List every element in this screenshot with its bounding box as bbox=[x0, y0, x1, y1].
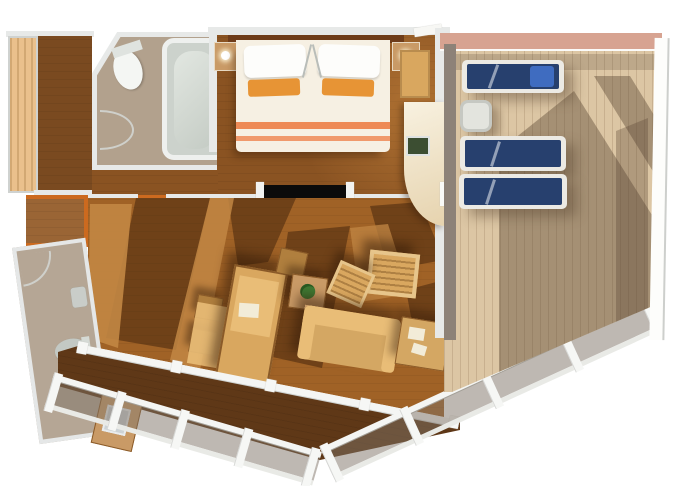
deck-left-wall bbox=[444, 44, 456, 340]
papers-on-table bbox=[411, 343, 427, 357]
plant-icon bbox=[299, 283, 316, 300]
sun-lounger-3 bbox=[459, 174, 567, 209]
window-mullion bbox=[265, 379, 277, 393]
door-swing-icon bbox=[19, 251, 55, 287]
nightstand-left bbox=[214, 42, 238, 71]
desk-screen bbox=[406, 136, 430, 156]
papers-on-table bbox=[238, 303, 259, 318]
pillow-right bbox=[317, 44, 380, 78]
double-bed bbox=[236, 40, 390, 152]
deck-side-table bbox=[460, 100, 492, 132]
wardrobe bbox=[8, 36, 38, 193]
window-mullion bbox=[170, 360, 182, 374]
bed-runner-stripe-2 bbox=[236, 136, 390, 141]
bedroom-closet bbox=[400, 50, 430, 98]
lounger-cushion bbox=[464, 178, 562, 205]
floor-plan bbox=[0, 0, 680, 486]
entry-hall-floor bbox=[38, 36, 92, 192]
lounger-cushion bbox=[465, 140, 561, 167]
towel-icon bbox=[530, 66, 554, 87]
sun-lounger-2 bbox=[460, 136, 566, 171]
accent-pillow-right bbox=[322, 78, 375, 97]
pillow-left bbox=[243, 44, 306, 78]
accent-pillow-left bbox=[248, 78, 301, 97]
window-mullion bbox=[76, 341, 88, 355]
deck-top-wall bbox=[440, 33, 662, 49]
bed-runner-stripe-1 bbox=[236, 122, 390, 129]
sink bbox=[70, 286, 88, 308]
window-mullion bbox=[359, 397, 371, 411]
lamp-icon bbox=[221, 51, 230, 60]
sun-lounger-1 bbox=[462, 60, 564, 93]
papers-on-table bbox=[408, 327, 426, 341]
